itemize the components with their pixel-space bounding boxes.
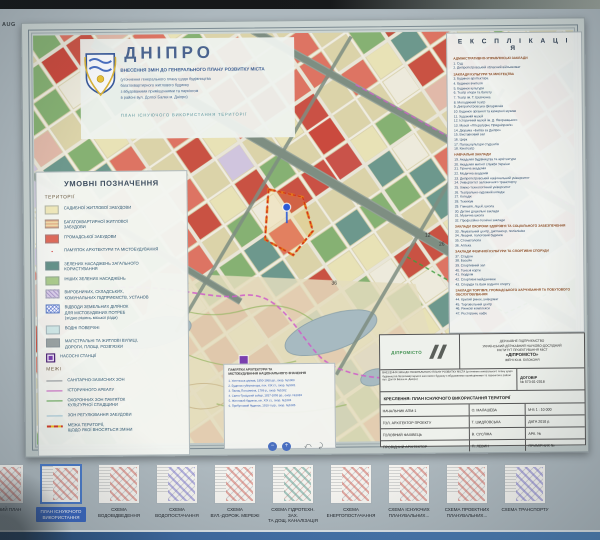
- thumbnail-image[interactable]: [0, 464, 24, 504]
- thumbnail-caption[interactable]: СХЕМА ПРОЕКТНИХ ПЛАНУВАЛЬНИХ...: [442, 507, 492, 518]
- viewer-controls: − + ⤺ ⤸: [268, 442, 323, 451]
- legend-swatch: [45, 205, 59, 214]
- legend-item: САНІТАРНО-ЗАХИСНИХ ЗОН: [46, 376, 180, 383]
- thumbnail-caption[interactable]: СХЕМА ВУЛ.-ДОРОЖ. МЕРЕЖІ: [210, 507, 260, 518]
- thumbnail-caption[interactable]: СХЕМА ВОДОВІДВЕДЕННЯ: [94, 507, 144, 518]
- taskbar: [0, 532, 600, 540]
- thumbnail-image[interactable]: [388, 464, 430, 504]
- legend-item-label: НАСОСНІ СТАНЦІЇ: [60, 353, 96, 359]
- explication-entry: 43. Споруди та бази водного спорту: [455, 281, 577, 287]
- explication-entry: 2. Дніпропетровський обласний військкома…: [453, 65, 575, 71]
- legend-item: ПАМ'ЯТОК АРХІТЕКТУРИ ТА МІСТОБУДУВАННЯ: [45, 246, 179, 256]
- thumbnail-caption[interactable]: СХЕМА ІСНУЮЧИХ ПЛАНУВАЛЬНИХ...: [384, 507, 434, 518]
- thumbnail-image[interactable]: [40, 464, 82, 504]
- legend-item: НАСОСНІ СТАНЦІЇ: [46, 353, 180, 363]
- signature-row: ПРОВІДНИЙ АРХІТЕКТОР П. ЛЕВИН ПРИМІРНИК …: [381, 439, 585, 452]
- legend-group-borders: МЕЖІ: [46, 366, 180, 372]
- legend-header: УМОВНІ ПОЗНАЧЕННЯ: [44, 178, 178, 188]
- genplan-document: 122636 ДНІПРО ВНЕСЕННЯ ЗМІН ДО ГЕНЕРАЛЬН…: [21, 17, 589, 457]
- title-block: ДНІПРО ВНЕСЕННЯ ЗМІН ДО ГЕНЕРАЛЬНОГО ПЛА…: [80, 37, 295, 139]
- page-thumbnail[interactable]: СХЕМА ВОДОПОСТАЧАННЯ: [152, 464, 202, 532]
- legend-swatch: [45, 219, 59, 228]
- photo-top-bezel: [0, 0, 600, 9]
- svg-text:12: 12: [425, 233, 431, 239]
- thumbnail-image[interactable]: [330, 464, 372, 504]
- monuments-note-header: ПАМ'ЯТКИ АРХІТЕКТУРИ ТА МІСТОБУДУВАННЯ Н…: [228, 367, 330, 377]
- legend-item: ГРОМАДСЬКОЇ ЗАБУДОВИ: [45, 233, 179, 243]
- legend-item: ВІДВОДИ ЗЕМЕЛЬНИХ ДІЛЯНОК ДЛЯ МІСТОБУДІВ…: [46, 304, 180, 321]
- contract-number: № 573-01-2018: [520, 379, 584, 384]
- thumbnail-image[interactable]: [98, 464, 140, 504]
- legend-item: БАГАТОКВАРТИРНОЇ ЖИТЛОВОЇ ЗАБУДОВИ: [45, 218, 179, 230]
- svg-text:26: 26: [439, 242, 445, 248]
- signature-value: ДАТА 2018 р.: [526, 415, 585, 427]
- legend-swatch: [45, 276, 59, 285]
- legend-item: МЕЖА ТЕРИТОРІЇ, ЩОДО ЯКОЇ ВНОСЯТЬСЯ ЗМІН…: [47, 421, 181, 433]
- signature-role: ГОЛОВНИЙ ФАХІВЕЦЬ: [381, 428, 470, 440]
- legend-item-label: ВОДНІ ПОВЕРХНІ: [65, 325, 100, 331]
- legend-border-list: САНІТАРНО-ЗАХИСНИХ ЗОН ІСТОРИЧНОГО АРЕАЛ…: [46, 376, 181, 432]
- signature-name: О. МАЛАШЕВА: [470, 404, 527, 416]
- legend-item-label: ІСТОРИЧНОГО АРЕАЛУ: [67, 387, 114, 393]
- document-subtitle: ВНЕСЕННЯ ЗМІН ДО ГЕНЕРАЛЬНОГО ПЛАНУ РОЗВ…: [120, 66, 290, 73]
- legend-swatch: [46, 305, 60, 314]
- legend-item-label: ЗЕЛЕНИХ НАСАДЖЕНЬ ЗАГАЛЬНОГО КОРИСТУВАНН…: [64, 260, 139, 271]
- legend-territory-list: САДИБНОЇ ЖИТЛОВОЇ ЗАБУДОВИ БАГАТОКВАРТИР…: [45, 204, 181, 363]
- legend-item: МАГІСТРАЛЬНІ ТА ЖИТЛОВІ ВУЛИЦІ, ДОРОГИ, …: [46, 338, 180, 350]
- project-description: ВНЕСЕННЯ ЗМІН ДО ГЕНЕРАЛЬНОГО ПЛАНУ РОЗВ…: [380, 369, 517, 391]
- legend-line-swatch: [46, 380, 62, 381]
- legend-item-label: ВИРОБНИЧИХ, СКЛАДСЬКИХ, КОМУНАЛЬНИХ ПІДП…: [64, 289, 148, 300]
- page-thumbnail[interactable]: ОПОРНИЙ ПЛАН: [0, 464, 28, 532]
- signature-rows: НАЧАЛЬНИК АПМ-1 О. МАЛАШЕВА М-Б 1 : 10 0…: [381, 403, 585, 452]
- thumbnail-image[interactable]: [214, 464, 256, 504]
- explication-entry: 18. Кінотеатр: [454, 146, 576, 152]
- monuments-note: ПАМ'ЯТКИ АРХІТЕКТУРИ ТА МІСТОБУДУВАННЯ Н…: [223, 363, 336, 450]
- signature-name: В. СУСЛІНА: [470, 428, 527, 440]
- legend-item-label: МЕЖА ТЕРИТОРІЇ, ЩОДО ЯКОЇ ВНОСЯТЬСЯ ЗМІН…: [68, 421, 133, 432]
- legend-line-swatch: [47, 400, 63, 401]
- legend-item: ЗЕЛЕНИХ НАСАДЖЕНЬ ЗАГАЛЬНОГО КОРИСТУВАНН…: [45, 260, 179, 272]
- screen-photo: AUG 122636 ДНІПРО ВНЕСЕННЯ ЗМІН ДО ГЕНЕР…: [0, 0, 600, 540]
- document-subtitle-detail: (уточнення генерального плану щодо будів…: [120, 75, 290, 100]
- explication-panel: Е К С П Л І К А Ц І Я АДМІНІСТРАТИВНО-УП…: [446, 31, 585, 333]
- signature-role: ПРОВІДНИЙ АРХІТЕКТОР: [381, 440, 470, 452]
- legend-item: ВИРОБНИЧИХ, СКЛАДСЬКИХ, КОМУНАЛЬНИХ ПІДП…: [45, 288, 179, 300]
- monuments-note-list: 1. Успенська церква, 1850-1860 рр., охор…: [228, 378, 330, 409]
- thumbnail-caption[interactable]: СХЕМА ЕНЕРГОПОСТАЧАННЯ: [326, 507, 376, 518]
- dipromisto-logo-icon: [426, 344, 448, 360]
- page-thumbnail[interactable]: СХЕМА ГІДРОТЕХН. ЗАХ. ТА ДОЩ. КАНАЛІЗАЦІ…: [268, 464, 318, 532]
- signature-value: АРК. №: [526, 427, 585, 439]
- thumbnail-caption[interactable]: СХЕМА ВОДОПОСТАЧАННЯ: [152, 507, 202, 518]
- legend-item-label: ПАМ'ЯТОК АРХІТЕКТУРИ ТА МІСТОБУДУВАННЯ: [64, 247, 158, 253]
- thumbnail-image[interactable]: [504, 464, 546, 504]
- legend-swatch: [45, 234, 59, 243]
- drawing-type-label: ПЛАН ІСНУЮЧОГО ВИКОРИСТАННЯ ТЕРИТОРІЇ: [121, 111, 291, 118]
- thumbnail-caption[interactable]: ОПОРНИЙ ПЛАН: [0, 507, 28, 513]
- legend-item-label: ЗОН РЕГУЛЮВАННЯ ЗАБУДОВИ: [68, 411, 132, 417]
- legend-swatch: [46, 339, 60, 348]
- legend-item-label: ВІДВОДИ ЗЕМЕЛЬНИХ ДІЛЯНОК ДЛЯ МІСТОБУДІВ…: [65, 304, 129, 321]
- legend-item: ЗОН РЕГУЛЮВАННЯ ЗАБУДОВИ: [47, 411, 181, 418]
- page-thumbnail[interactable]: СХЕМА ВОДОВІДВЕДЕННЯ: [94, 464, 144, 532]
- legend-line-swatch: [47, 415, 63, 416]
- page-thumbnail[interactable]: СХЕМА ТРАНСПОРТУ: [500, 464, 550, 532]
- legend-swatch: [46, 325, 60, 334]
- zoom-out-button[interactable]: −: [268, 442, 277, 451]
- signature-role: ГОЛ. АРХІТЕКТОР ПРОЕКТУ: [381, 416, 470, 428]
- page-thumbnail[interactable]: ПЛАН ІСНУЮЧОГО ВИКОРИСТАННЯ: [36, 464, 86, 532]
- legend-swatch: [45, 247, 59, 256]
- dnipro-coat-of-arms: [83, 51, 117, 97]
- signature-name: Т. ШИДЛОВСЬКА: [470, 416, 527, 428]
- institute-logo: ДІПРОМІСТО: [380, 335, 460, 370]
- thumbnail-caption[interactable]: СХЕМА ГІДРОТЕХН. ЗАХ. ТА ДОЩ. КАНАЛІЗАЦІ…: [268, 507, 318, 524]
- explication-entry: 47. Ресторани, кафе: [456, 310, 578, 316]
- thumbnail-caption[interactable]: ПЛАН ІСНУЮЧОГО ВИКОРИСТАННЯ: [36, 507, 86, 522]
- thumbnail-image[interactable]: [272, 464, 314, 504]
- institute-logo-text: ДІПРОМІСТО: [391, 349, 422, 354]
- thumbnail-image[interactable]: [156, 464, 198, 504]
- svg-text:36: 36: [331, 281, 337, 287]
- explication-entry: 32. Професійно-технічні заклади: [455, 217, 577, 223]
- legend-swatch: [45, 290, 59, 299]
- page-thumbnail[interactable]: СХЕМА ПРОЕКТНИХ ПЛАНУВАЛЬНИХ...: [442, 464, 492, 532]
- page-thumbnail[interactable]: СХЕМА ВУЛ.-ДОРОЖ. МЕРЕЖІ: [210, 464, 260, 532]
- signature-value: М-Б 1 : 10 000: [526, 403, 585, 415]
- legend-item: ІСТОРИЧНОГО АРЕАЛУ: [46, 386, 180, 393]
- signature-name: П. ЛЕВИН: [470, 440, 527, 452]
- legend-swatch: [46, 354, 55, 363]
- legend-item: ІНШИХ ЗЕЛЕНИХ НАСАДЖЕНЬ: [45, 275, 179, 285]
- rotate-left-icon[interactable]: ⤺: [304, 442, 311, 451]
- legend-swatch: [45, 261, 59, 270]
- thumbnail-caption[interactable]: СХЕМА ТРАНСПОРТУ: [500, 507, 550, 513]
- zoom-in-button[interactable]: +: [282, 442, 291, 451]
- legend-item: ВОДНІ ПОВЕРХНІ: [46, 324, 180, 334]
- legend-item-label: ГРОМАДСЬКОЇ ЗАБУДОВИ: [64, 233, 116, 239]
- legend-line-swatch: [46, 390, 62, 391]
- legend-group-territories: ТЕРИТОРІЇ: [45, 194, 179, 200]
- page-thumbnail[interactable]: СХЕМА ЕНЕРГОПОСТАЧАННЯ: [326, 464, 376, 532]
- page-thumbnail[interactable]: СХЕМА ІСНУЮЧИХ ПЛАНУВАЛЬНИХ...: [384, 464, 434, 532]
- thumbnail-image[interactable]: [446, 464, 488, 504]
- page-thumbnail-strip: ОПОРНИЙ ПЛАН ПЛАН ІСНУЮЧОГО ВИКОРИСТАННЯ…: [0, 464, 600, 532]
- signature-value: ПРИМІРНИК №: [526, 439, 585, 451]
- city-title: ДНІПРО: [124, 43, 214, 64]
- legend-item-label: ОХОРОННИХ ЗОН ПАМ'ЯТОК КУЛЬТУРНОЇ СПАДЩИ…: [68, 396, 126, 407]
- signature-role: НАЧАЛЬНИК АПМ-1: [381, 404, 470, 416]
- org-line: ІМЕНІ Ю.М. БІЛОКОНЯ: [505, 358, 540, 363]
- legend-item-label: САДИБНОЇ ЖИТЛОВОЇ ЗАБУДОВИ: [64, 205, 132, 211]
- legend-item-label: ІНШИХ ЗЕЛЕНИХ НАСАДЖЕНЬ: [64, 275, 125, 281]
- monument-item: 6. Прибутковий будинок, 1910-ті рр., охо…: [229, 403, 331, 409]
- explication-header: Е К С П Л І К А Ц І Я: [453, 37, 575, 52]
- legend-item: САДИБНОЇ ЖИТЛОВОЇ ЗАБУДОВИ: [45, 204, 179, 214]
- legend-item-label: МАГІСТРАЛЬНІ ТА ЖИТЛОВІ ВУЛИЦІ, ДОРОГИ, …: [65, 338, 138, 349]
- legend-item-label: САНІТАРНО-ЗАХИСНИХ ЗОН: [67, 377, 124, 383]
- legend-item: ОХОРОННИХ ЗОН ПАМ'ЯТОК КУЛЬТУРНОЇ СПАДЩИ…: [47, 396, 181, 408]
- legend-line-swatch: [47, 425, 63, 428]
- title-stamp: ДІПРОМІСТО ДЕРЖАВНЕ ПІДПРИЄМСТВО УКРАЇНС…: [379, 332, 586, 447]
- osd-text: AUG: [2, 22, 16, 28]
- legend-panel: УМОВНІ ПОЗНАЧЕННЯ ТЕРИТОРІЇ САДИБНОЇ ЖИТ…: [35, 170, 190, 456]
- legend-item-label: БАГАТОКВАРТИРНОЇ ЖИТЛОВОЇ ЗАБУДОВИ: [64, 218, 128, 229]
- explication-list: АДМІНІСТРАТИВНО-УПРАВЛІНСЬКІ ЗАКЛАДИ 1. …: [453, 55, 577, 316]
- rotate-right-icon[interactable]: ⤸: [318, 442, 322, 451]
